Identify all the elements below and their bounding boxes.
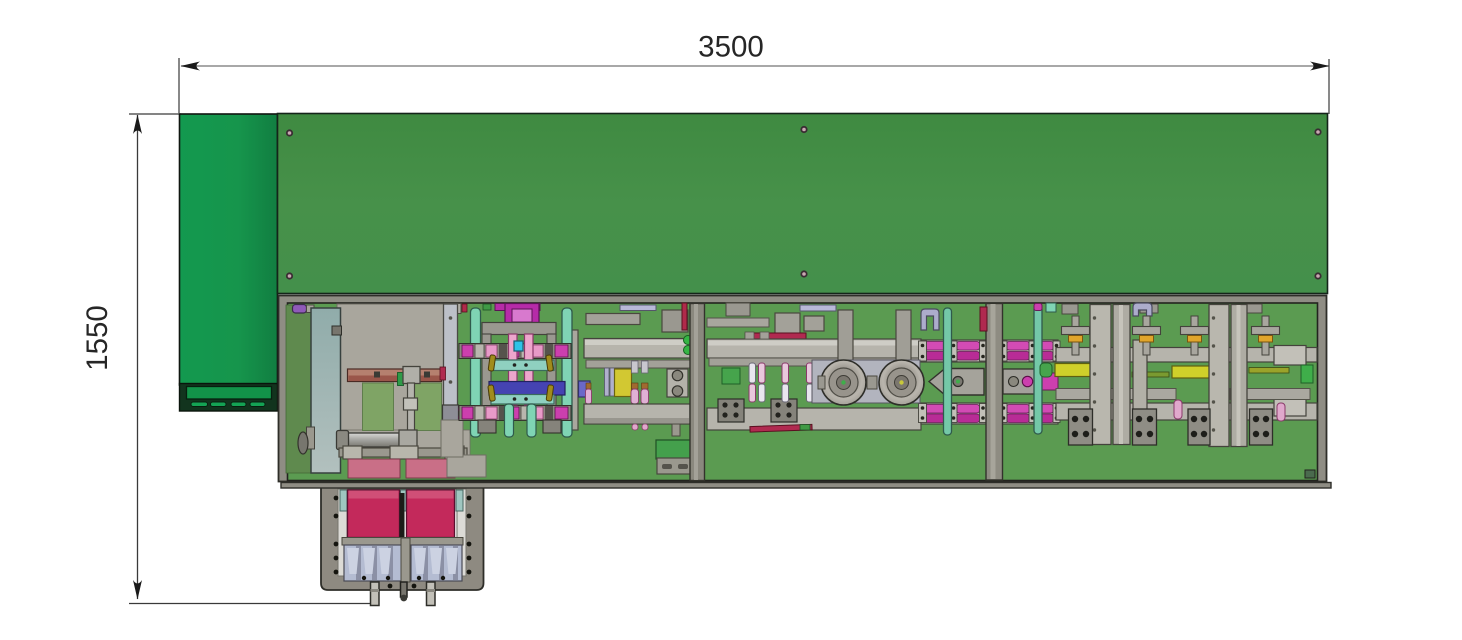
svg-text:1550: 1550 — [81, 305, 114, 371]
svg-text:3500: 3500 — [698, 31, 764, 64]
